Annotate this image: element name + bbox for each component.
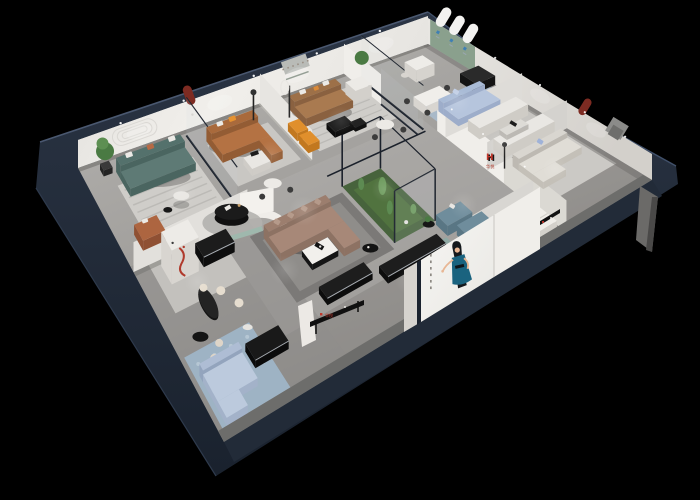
ceiling-spot-icon (316, 52, 318, 54)
red-vase-icon (542, 221, 544, 223)
chair-dark (400, 127, 406, 133)
table-decor-icon (367, 246, 369, 248)
brand-name: 华悦 (486, 163, 495, 170)
shelf-item-dot (171, 242, 173, 244)
shelf-brand-name: 华悦 (325, 312, 333, 318)
shelf-decor-dot (344, 306, 346, 308)
round-table-black (362, 244, 378, 253)
table-decor-icon (319, 245, 321, 247)
ceiling-spot-icon (539, 84, 541, 86)
bar-vase-icon (238, 204, 241, 207)
table-dining-small (264, 178, 282, 188)
side-table-white (243, 324, 253, 330)
floor-spotlight-pool (289, 196, 319, 226)
ceiling-spot-icon (451, 108, 453, 110)
floor-spotlight-pool (542, 156, 568, 182)
brand-mark-icon (320, 313, 322, 315)
bar-stool-cream (235, 298, 244, 307)
marble-table-round (192, 332, 208, 342)
ceiling-spot-icon (482, 133, 484, 135)
ceiling-spot-icon (524, 166, 526, 168)
chair-dark (444, 85, 450, 91)
chair-dark (259, 194, 265, 200)
floor-spotlight-pool (445, 88, 471, 114)
ceiling-spot-icon (119, 122, 121, 124)
plant-foliage-icon (425, 216, 431, 222)
bar-table-oval (215, 204, 249, 220)
bar-stool-cream (216, 286, 225, 295)
white-vase-icon (550, 217, 552, 219)
wall-brand-logo: H H 华悦 (486, 153, 495, 170)
floor-spotlight-pool (327, 107, 355, 135)
floor-spotlight-pool (258, 141, 286, 169)
chair-dark (404, 98, 410, 104)
brand-monogram: H (486, 153, 494, 163)
cactus-icon (358, 178, 364, 190)
shelf-item-dot (183, 246, 185, 248)
poster-side-edge (417, 260, 421, 325)
floor-spotlight-pool (449, 191, 477, 219)
ceiling-spot-icon (624, 136, 626, 138)
ceiling-spot-icon (494, 57, 496, 59)
cafe-chair-cream (215, 339, 223, 347)
floor-lamp-head-icon (250, 89, 256, 95)
table-dining-small (376, 120, 394, 130)
floor-spotlight-pool (164, 176, 196, 208)
chair-dark (372, 134, 378, 140)
side-table-black (163, 207, 172, 213)
chair-dark (424, 110, 430, 116)
render-canvas: 华悦 H H (0, 0, 700, 500)
floor-spotlight-pool (371, 176, 397, 202)
ceiling-spot-icon (584, 111, 586, 113)
plant-foliage-icon (355, 51, 369, 65)
rug-floral-dot (245, 335, 249, 339)
floor-spotlight-pool (185, 269, 211, 295)
plant-foliage-icon (97, 138, 109, 150)
chair-dark (287, 187, 293, 193)
cactus-icon (387, 201, 393, 215)
ceiling-spot-icon (379, 30, 381, 32)
showroom-3d-render: 华悦 H H (0, 0, 700, 500)
ceiling-spot-icon (253, 75, 255, 77)
ceiling-spot-icon (182, 100, 184, 102)
floor-spotlight-pool (270, 255, 300, 285)
side-table-grey (401, 73, 409, 78)
